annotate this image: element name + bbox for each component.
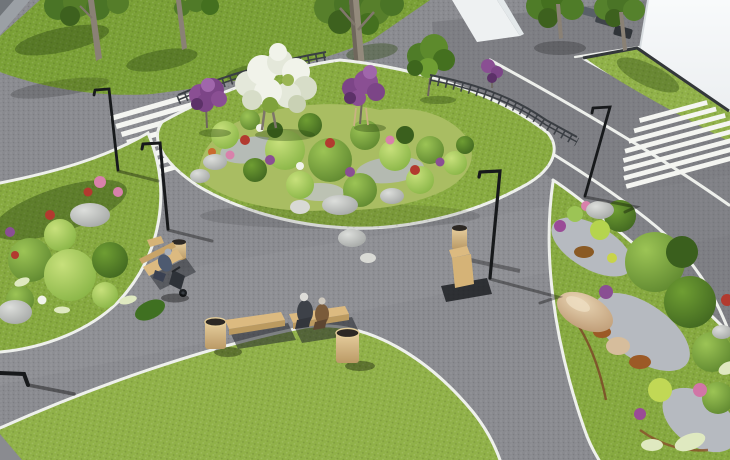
shrub [92, 242, 128, 278]
shrub [92, 282, 118, 308]
person-head [318, 297, 325, 304]
tree-shadow-on-road [534, 41, 586, 55]
boulder [70, 203, 110, 227]
shrub [44, 249, 96, 301]
person-head [165, 249, 172, 256]
litter-bin-4: Wooden litter bin [452, 225, 467, 249]
shadow [161, 294, 189, 303]
landscape-render: Asphalt park paths and plaza Asphalt roa… [0, 0, 730, 460]
bench-body [452, 254, 474, 288]
shrub [44, 219, 76, 251]
scene-canvas: Asphalt park paths and plaza Asphalt roa… [0, 0, 730, 460]
person-head [300, 293, 308, 301]
